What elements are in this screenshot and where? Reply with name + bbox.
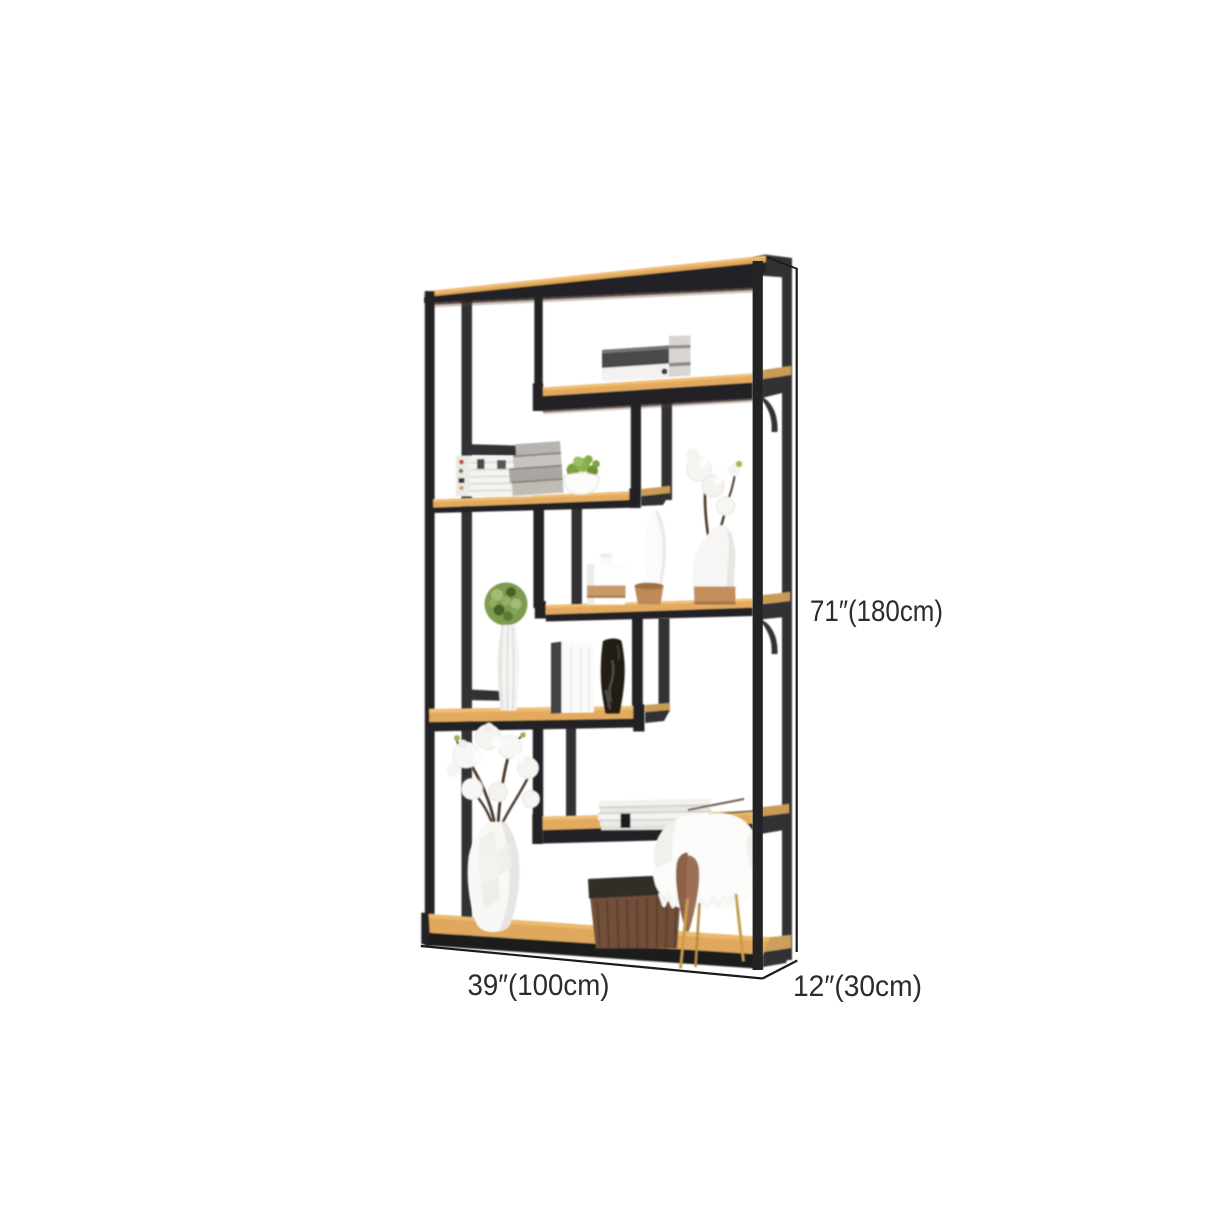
svg-text:71″(180cm): 71″(180cm): [810, 595, 943, 628]
svg-text:12″(30cm): 12″(30cm): [793, 970, 922, 1003]
svg-text:39″(100cm): 39″(100cm): [468, 969, 610, 1002]
